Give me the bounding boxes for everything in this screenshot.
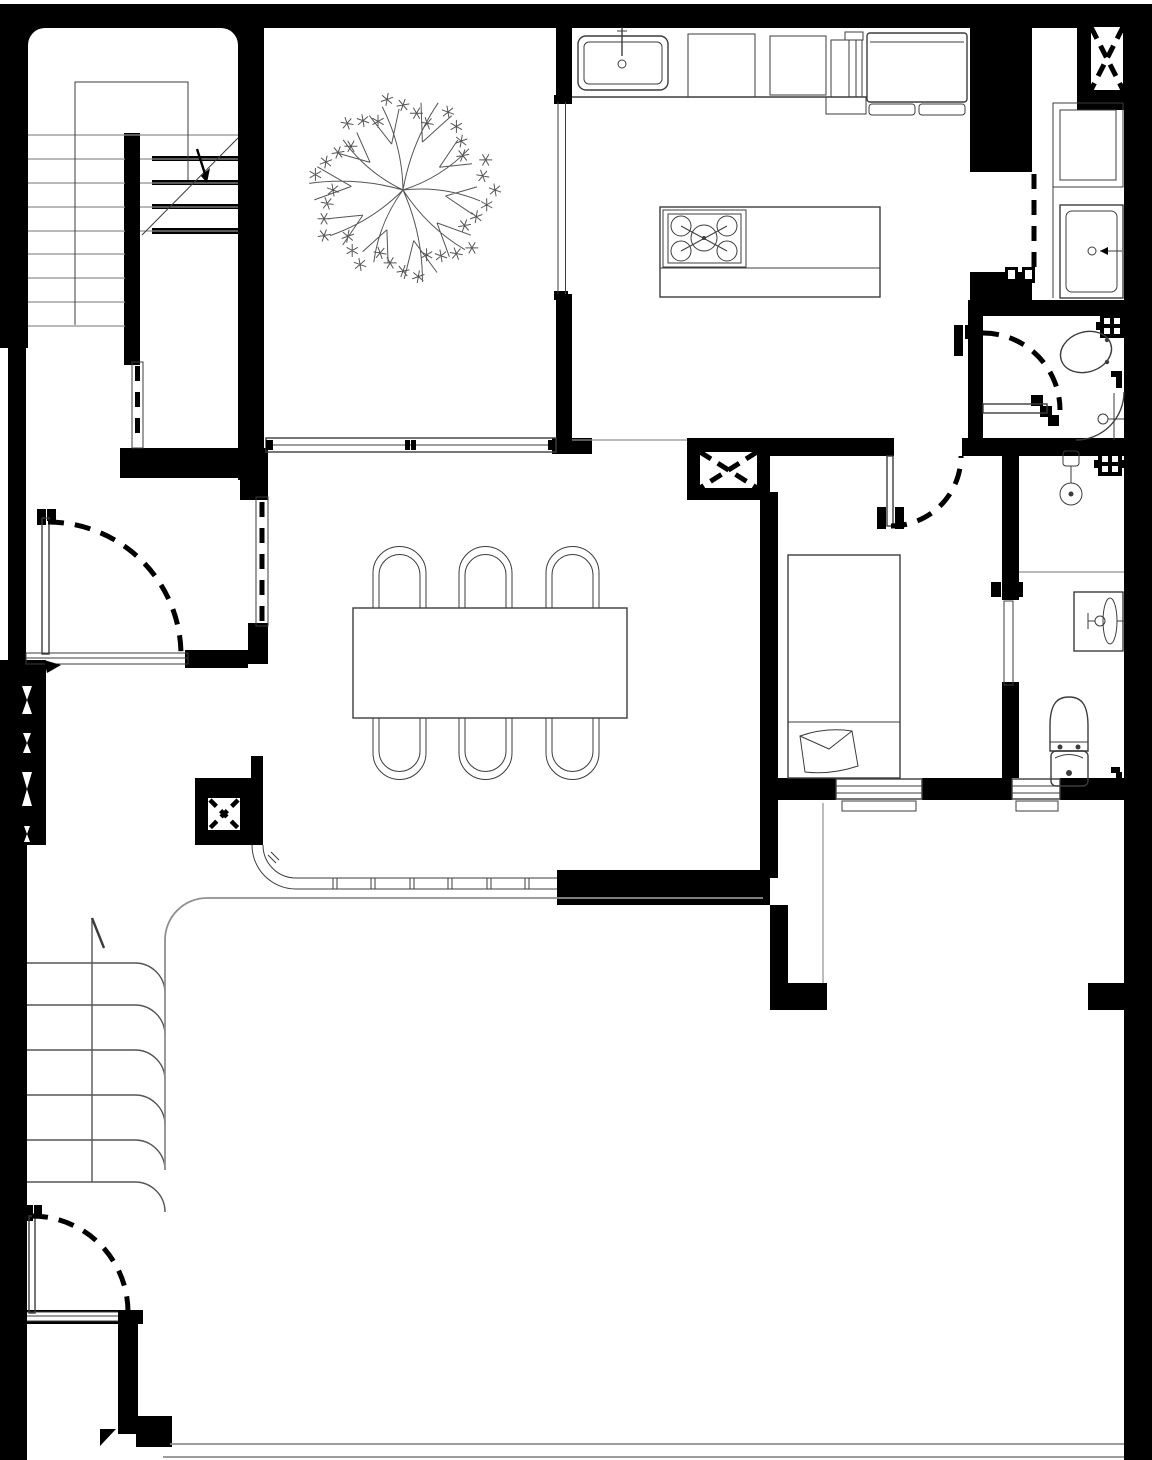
- chair: [459, 547, 512, 609]
- oven-column: [826, 32, 866, 114]
- wall-corner-fillets: [28, 28, 238, 45]
- bedroom-door-leaf: [887, 456, 893, 526]
- bath-vanity-inner: [1060, 110, 1116, 180]
- tub-shower: [1060, 205, 1123, 298]
- chair: [546, 547, 599, 609]
- flush-button: [1066, 770, 1072, 776]
- chair: [546, 718, 599, 780]
- boundary-lines: [163, 1444, 1124, 1457]
- grate-bathroom: [1094, 452, 1126, 476]
- courtyard-tree: [309, 93, 501, 283]
- corner-shower-arc: [1076, 392, 1124, 440]
- flow-arrow: [1100, 247, 1108, 255]
- window-sill: [1016, 801, 1058, 811]
- wall-end-arrow: [100, 1429, 116, 1446]
- door-leaf: [29, 1216, 35, 1313]
- floor-plan-canvas: [0, 0, 1152, 1460]
- tree-symbol-strokes: [309, 93, 501, 283]
- window-sill: [842, 801, 916, 811]
- floor-plan-page: [0, 0, 1152, 1460]
- entry-door-swing-arc: [48, 522, 181, 655]
- bedroom: [788, 456, 1060, 811]
- refrigerator: [867, 33, 967, 115]
- bed: [788, 555, 900, 778]
- sink-drain: [618, 60, 626, 68]
- exterior-steps: [27, 918, 165, 1212]
- bath-vanity: [1053, 103, 1123, 187]
- chair: [459, 718, 512, 780]
- walk-line-tick: [92, 918, 104, 948]
- walls: [0, 4, 1152, 1460]
- grate-wc: [1096, 314, 1128, 338]
- dining-table: [353, 608, 627, 718]
- entry-door-leaf: [42, 518, 49, 654]
- bedroom-sliding-door-leaf: [1004, 601, 1013, 685]
- counter-cabinet-1: [688, 34, 755, 97]
- entry-direction-tick: [44, 660, 61, 673]
- kitchen-island: [660, 207, 880, 297]
- counter-cabinet-2: [770, 36, 826, 95]
- terrace-edge: [165, 898, 763, 1170]
- toilet-bolt: [1105, 360, 1109, 364]
- bedroom-window: [836, 779, 922, 811]
- wc-door-swing-arc: [983, 333, 1060, 410]
- kitchen-sink: [578, 27, 668, 90]
- dining-room: [252, 497, 627, 889]
- bathroom-window: [1012, 779, 1060, 811]
- kitchen: [572, 27, 1034, 440]
- entry: [26, 518, 188, 673]
- bathroom-top: [1053, 103, 1123, 298]
- toilet-right: [1050, 697, 1088, 786]
- shower-head: [1060, 451, 1082, 505]
- basin-vanity: [1074, 592, 1124, 651]
- wall-mass: [0, 4, 1152, 1460]
- toilet-bolt: [1105, 338, 1109, 342]
- stair-break-line: [142, 138, 238, 235]
- chair: [373, 547, 426, 609]
- courtyard-right-window: [558, 102, 566, 294]
- bottom-left-door: [27, 1216, 128, 1446]
- courtyard-windows: [266, 102, 566, 452]
- stair-direction-arrow: [197, 149, 205, 174]
- chair: [373, 718, 426, 780]
- shower-valve: [1098, 414, 1108, 424]
- pillow: [800, 730, 858, 773]
- burner-center-dot: [702, 236, 706, 240]
- door-swing-arc: [32, 1216, 128, 1312]
- drain: [1088, 247, 1096, 255]
- bathroom-right: [1019, 451, 1124, 786]
- railing: [252, 845, 557, 889]
